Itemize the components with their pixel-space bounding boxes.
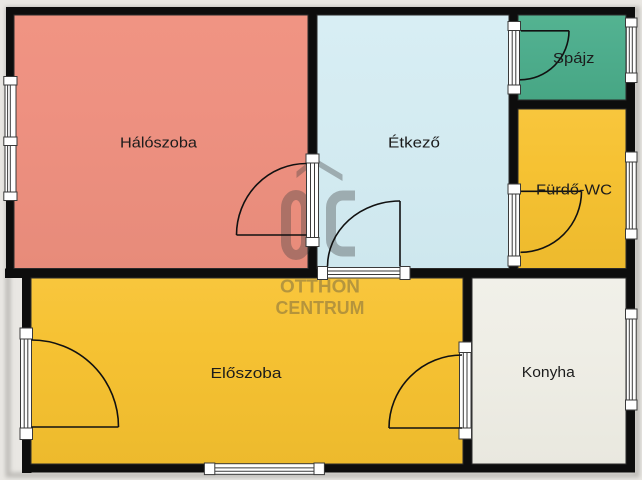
svg-text:Étkező: Étkező: [388, 135, 440, 152]
svg-text:Hálószoba: Hálószoba: [120, 136, 198, 152]
svg-text:Előszoba: Előszoba: [211, 366, 283, 382]
svg-text:Fürdő-WC: Fürdő-WC: [536, 183, 612, 199]
svg-text:Spájz: Spájz: [553, 51, 595, 67]
svg-text:CENTRUM: CENTRUM: [276, 298, 365, 318]
svg-text:Konyha: Konyha: [522, 365, 576, 381]
